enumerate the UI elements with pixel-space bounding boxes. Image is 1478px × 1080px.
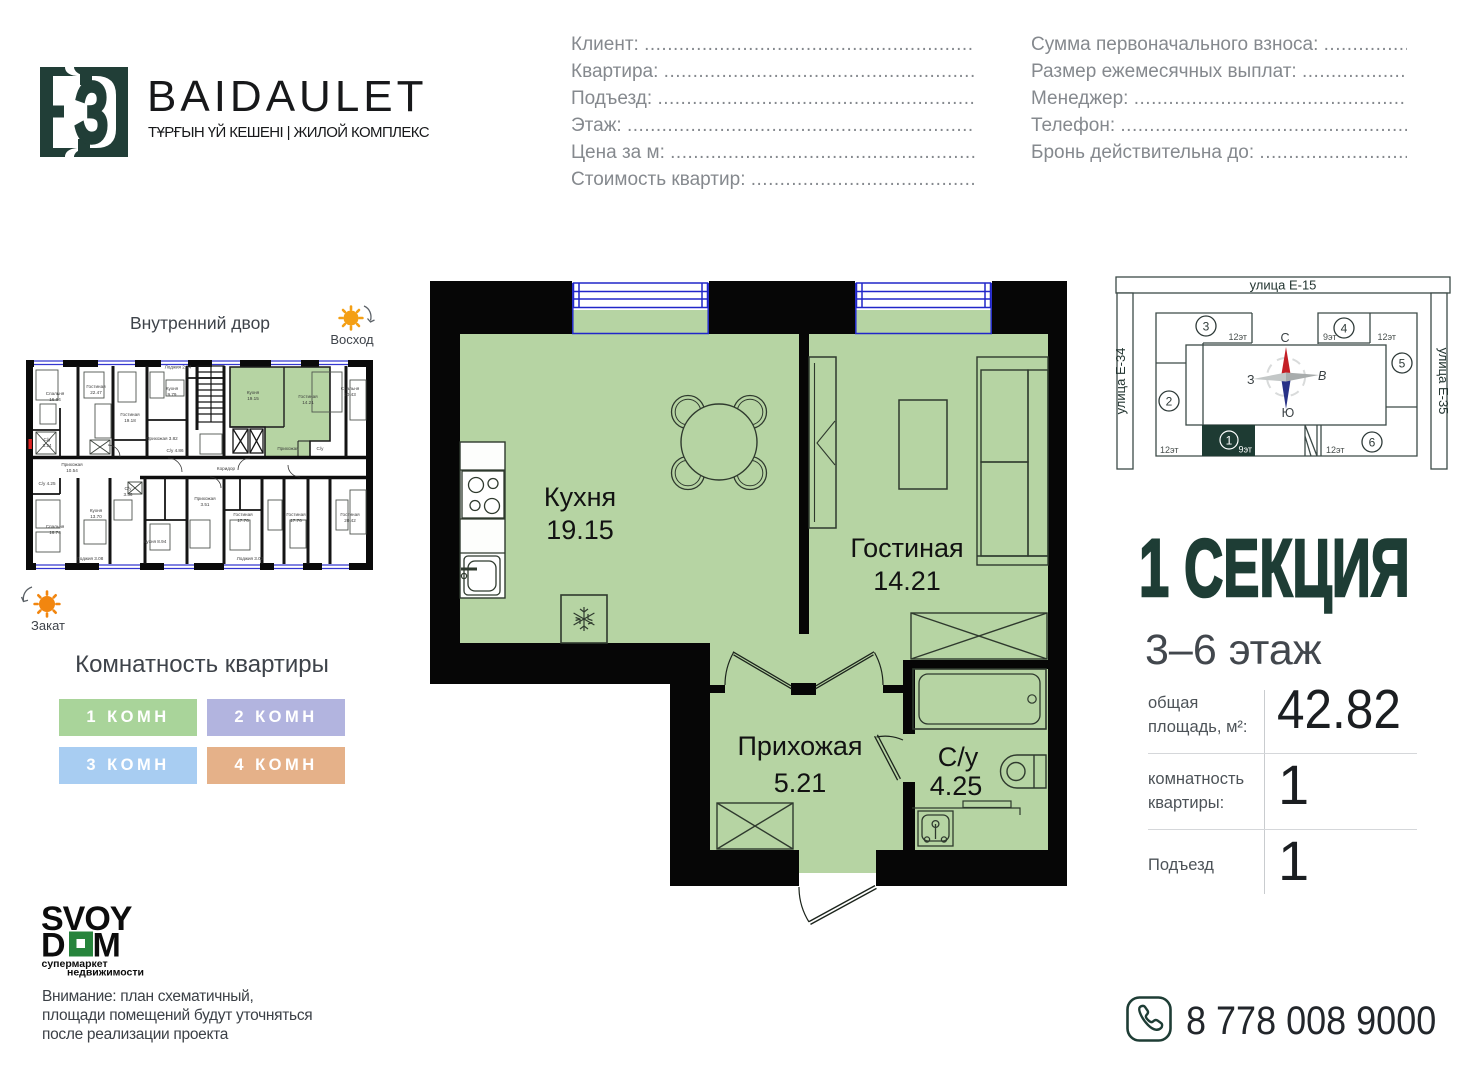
svg-text:3: 3 bbox=[1203, 320, 1210, 334]
svg-text:6: 6 bbox=[1369, 436, 1376, 450]
svg-text:Прихожая: Прихожая bbox=[277, 446, 299, 451]
svg-text:С: С bbox=[1280, 331, 1289, 345]
svg-text:З: З bbox=[1247, 373, 1255, 387]
svg-text:Лоджия 3.08: Лоджия 3.08 bbox=[77, 556, 104, 561]
svg-text:С/у: С/у bbox=[44, 437, 52, 442]
svg-text:5: 5 bbox=[1399, 357, 1406, 371]
svg-text:улица Е-35: улица Е-35 bbox=[1436, 348, 1451, 415]
svg-text:Спальня: Спальня bbox=[341, 386, 360, 391]
svg-text:20.42: 20.42 bbox=[344, 518, 356, 523]
svg-text:16.64: 16.64 bbox=[49, 397, 61, 402]
svg-text:С/у: С/у bbox=[317, 446, 325, 451]
svg-text:Гостиная: Гостиная bbox=[86, 384, 106, 389]
svg-text:4.25: 4.25 bbox=[930, 771, 983, 801]
svg-text:улица Е-34: улица Е-34 bbox=[1113, 348, 1128, 415]
svg-text:Прихожая: Прихожая bbox=[737, 731, 862, 761]
svg-text:Лоджия 3.02: Лоджия 3.02 bbox=[237, 556, 264, 561]
svg-text:16.74: 16.74 bbox=[49, 530, 61, 535]
svg-text:19.18: 19.18 bbox=[124, 418, 136, 423]
svg-text:22.47: 22.47 bbox=[90, 390, 102, 395]
svg-text:17.76: 17.76 bbox=[290, 518, 302, 523]
svg-text:14.21: 14.21 bbox=[873, 566, 941, 596]
svg-text:12эт: 12эт bbox=[1326, 445, 1345, 455]
svg-text:Кухня 8.94: Кухня 8.94 bbox=[144, 539, 167, 544]
svg-text:19.15: 19.15 bbox=[546, 515, 614, 545]
svg-text:Гостиная: Гостиная bbox=[286, 512, 306, 517]
svg-text:Ю: Ю bbox=[1282, 406, 1295, 420]
svg-text:Кухня: Кухня bbox=[166, 386, 179, 391]
svg-text:Гостиная: Гостиная bbox=[233, 512, 253, 517]
svg-text:С/у: С/у bbox=[125, 486, 133, 491]
svg-text:недвижимости: недвижимости bbox=[67, 967, 144, 979]
svg-text:10.54: 10.54 bbox=[66, 468, 78, 473]
svg-text:З: З bbox=[75, 67, 109, 157]
svg-text:Кухня: Кухня bbox=[90, 508, 103, 513]
svg-text:Кухня: Кухня bbox=[544, 482, 616, 512]
svg-text:Гостиная: Гостиная bbox=[850, 533, 963, 563]
svg-text:12эт: 12эт bbox=[1160, 445, 1179, 455]
svg-text:4: 4 bbox=[1341, 322, 1348, 336]
svg-text:3.24: 3.24 bbox=[43, 443, 52, 448]
svg-text:Спальня: Спальня bbox=[46, 391, 65, 396]
svg-text:14.21: 14.21 bbox=[302, 400, 314, 405]
svg-text:Гостиная: Гостиная bbox=[340, 512, 360, 517]
svg-text:20.43: 20.43 bbox=[344, 392, 356, 397]
svg-text:3.51: 3.51 bbox=[201, 502, 210, 507]
svg-text:12эт: 12эт bbox=[1228, 332, 1247, 342]
svg-text:1: 1 bbox=[1226, 434, 1233, 448]
svg-text:Кухня: Кухня bbox=[247, 390, 260, 395]
svg-text:5.21: 5.21 bbox=[774, 768, 827, 798]
svg-text:Спальня: Спальня bbox=[46, 524, 65, 529]
svg-text:Лоджия 2.74: Лоджия 2.74 bbox=[165, 365, 192, 370]
svg-text:17.76: 17.76 bbox=[237, 518, 249, 523]
svg-text:В: В bbox=[1318, 369, 1326, 383]
svg-text:12эт: 12эт bbox=[1377, 332, 1396, 342]
svg-text:улица Е-15: улица Е-15 bbox=[1250, 278, 1317, 293]
svg-text:Коридор: Коридор bbox=[217, 466, 236, 471]
svg-text:Гостиная: Гостиная bbox=[298, 394, 318, 399]
svg-text:2: 2 bbox=[1166, 395, 1173, 409]
svg-text:С/у 4.25: С/у 4.25 bbox=[38, 481, 56, 486]
svg-text:9эт: 9эт bbox=[1323, 332, 1337, 342]
svg-text:Прихожая 3.82: Прихожая 3.82 bbox=[146, 436, 178, 441]
svg-text:Прихожая: Прихожая bbox=[194, 496, 216, 501]
svg-text:3.36: 3.36 bbox=[124, 492, 133, 497]
svg-text:С/у 4.86: С/у 4.86 bbox=[166, 448, 184, 453]
svg-text:Гостиная: Гостиная bbox=[120, 412, 140, 417]
svg-text:С/у: С/у bbox=[938, 742, 979, 772]
svg-text:19.15: 19.15 bbox=[247, 396, 259, 401]
svg-text:9эт: 9эт bbox=[1238, 445, 1252, 455]
svg-text:13.70: 13.70 bbox=[90, 514, 102, 519]
svg-text:Прихожая: Прихожая bbox=[61, 462, 83, 467]
svg-text:9.79: 9.79 bbox=[168, 392, 177, 397]
